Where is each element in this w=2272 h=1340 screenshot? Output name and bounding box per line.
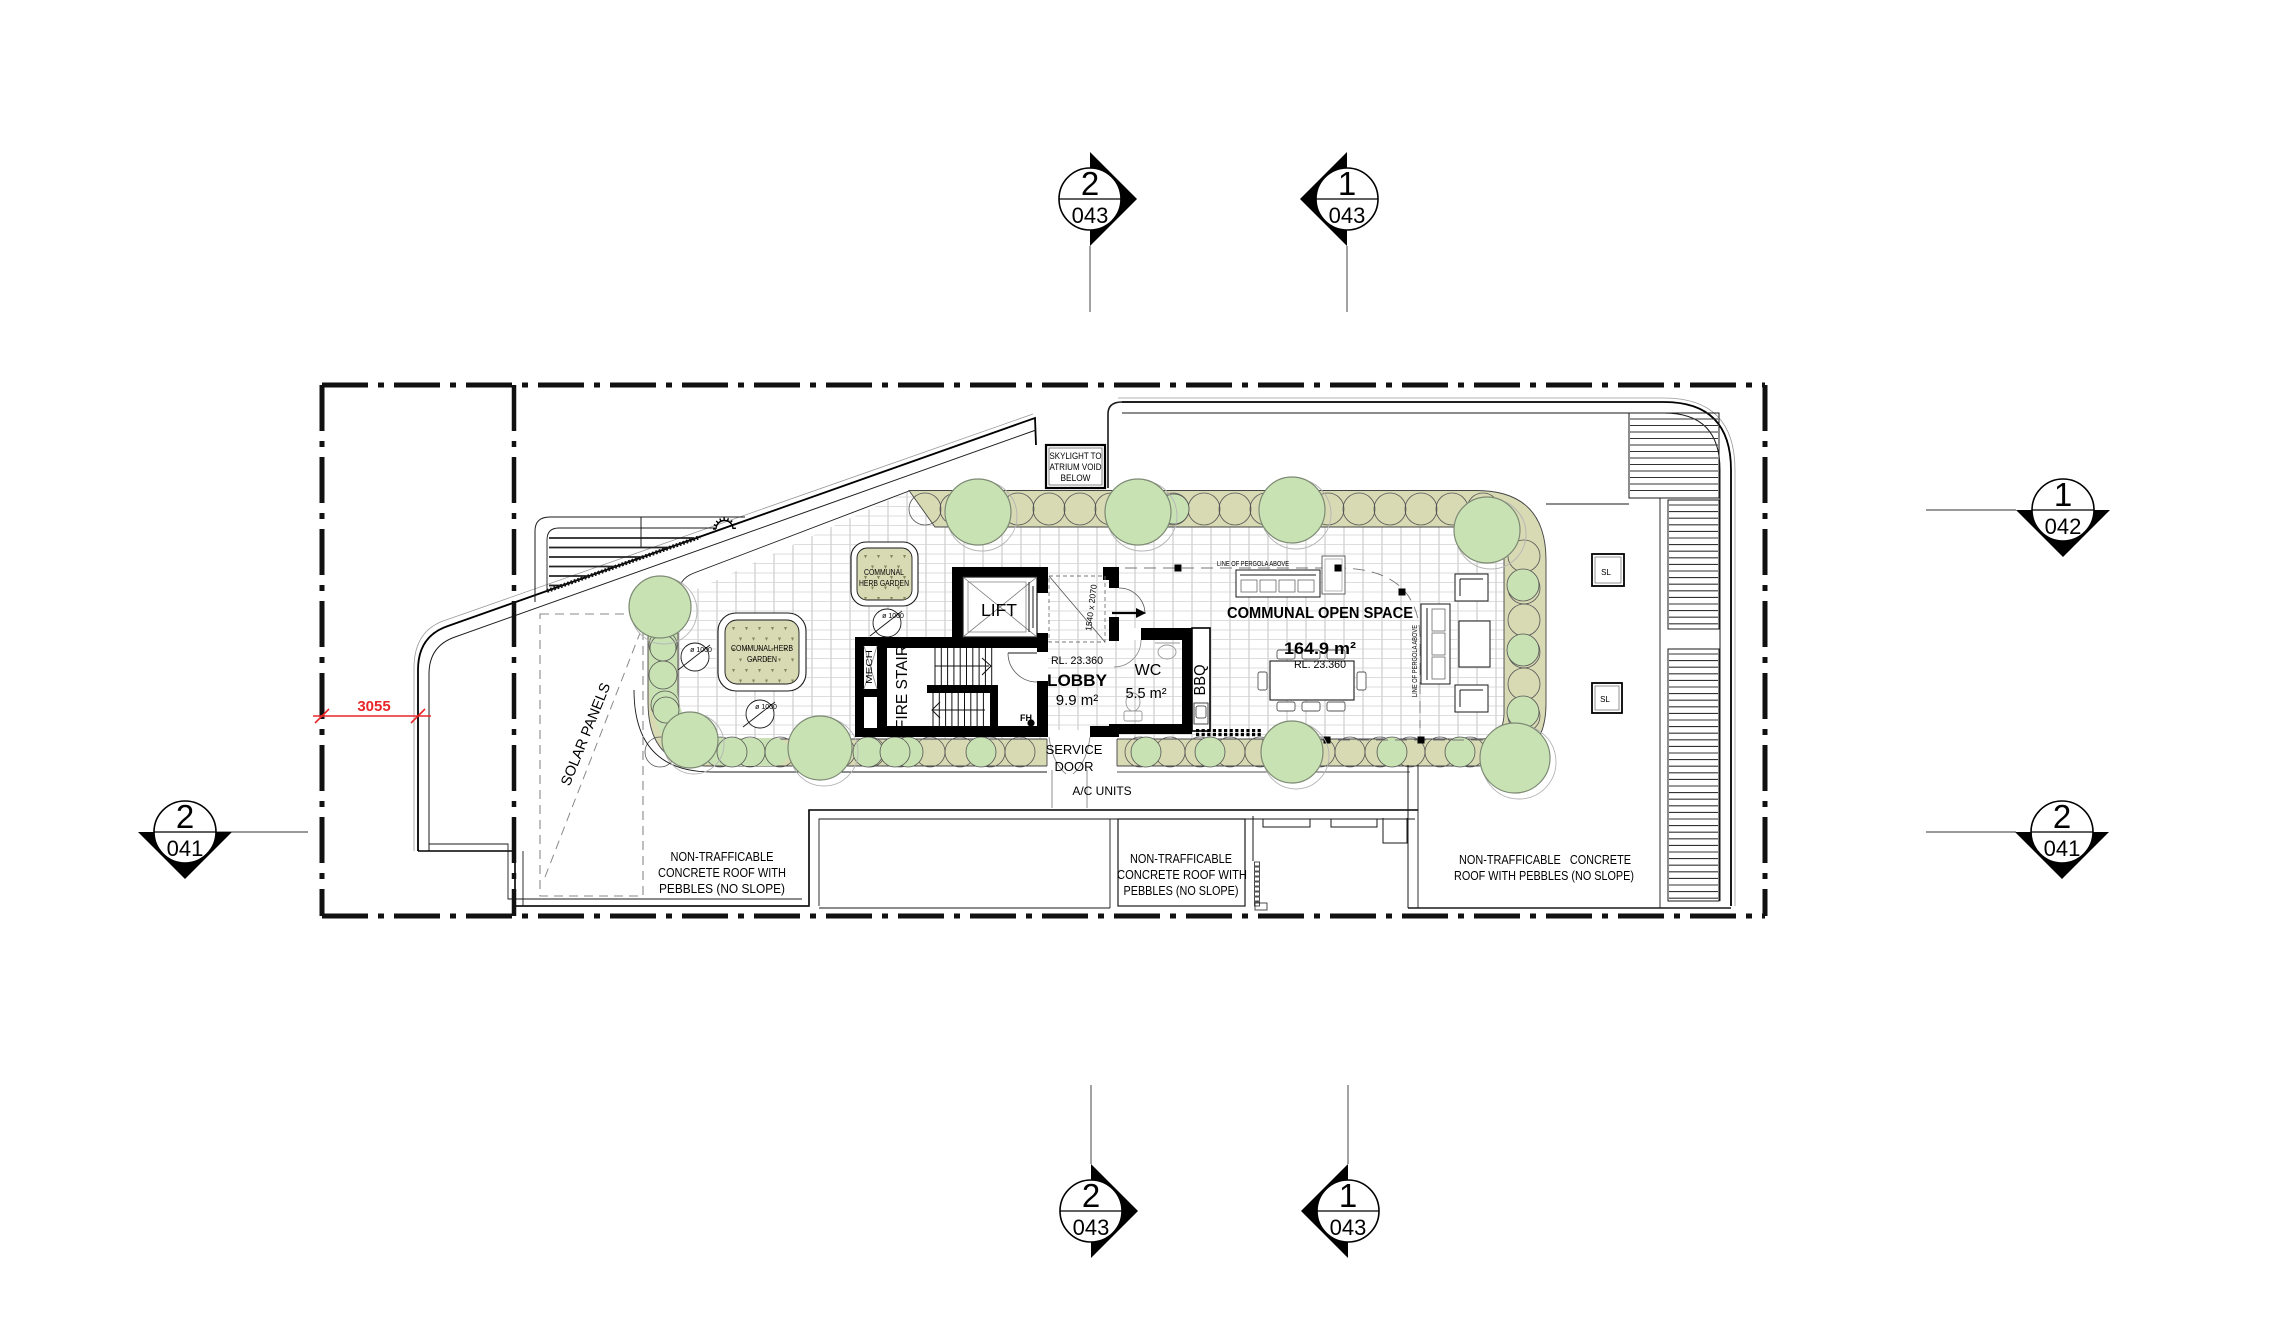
- svg-text:WC: WC: [1135, 662, 1162, 679]
- svg-text:COMMUNAL OPEN SPACE: COMMUNAL OPEN SPACE: [1227, 605, 1413, 622]
- svg-text:ATRIUM VOID: ATRIUM VOID: [1050, 462, 1102, 473]
- svg-text:LOBBY: LOBBY: [1047, 671, 1108, 690]
- svg-text:SERVICE: SERVICE: [1046, 742, 1103, 757]
- svg-text:PEBBLES (NO SLOPE): PEBBLES (NO SLOPE): [1124, 883, 1239, 898]
- svg-text:2: 2: [1081, 165, 1099, 202]
- svg-text:2: 2: [176, 798, 194, 835]
- svg-text:GARDEN: GARDEN: [747, 654, 777, 664]
- svg-text:041: 041: [2044, 836, 2081, 861]
- svg-text:041: 041: [167, 836, 204, 861]
- svg-text:LIFT: LIFT: [981, 600, 1017, 620]
- svg-text:ø 1000: ø 1000: [755, 704, 777, 711]
- svg-text:COMMUNAL: COMMUNAL: [864, 567, 904, 577]
- svg-text:042: 042: [2045, 514, 2082, 539]
- svg-text:SL: SL: [1601, 568, 1611, 577]
- svg-text:COMMUNAL HERB: COMMUNAL HERB: [731, 643, 793, 653]
- svg-text:RL. 23.360: RL. 23.360: [1051, 655, 1103, 667]
- svg-text:ø 1000: ø 1000: [882, 613, 904, 620]
- svg-text:SL: SL: [1600, 695, 1610, 704]
- svg-text:1: 1: [1338, 165, 1356, 202]
- svg-text:NON-TRAFFICABLE: NON-TRAFFICABLE: [671, 849, 774, 864]
- svg-text:HERB GARDEN: HERB GARDEN: [859, 578, 909, 588]
- svg-text:043: 043: [1072, 203, 1109, 228]
- svg-text:ROOF WITH PEBBLES (NO SLOPE): ROOF WITH PEBBLES (NO SLOPE): [1454, 868, 1634, 883]
- svg-text:5.5 m²: 5.5 m²: [1125, 686, 1166, 702]
- svg-text:DOOR: DOOR: [1055, 759, 1094, 774]
- svg-text:BBQ: BBQ: [1192, 665, 1209, 696]
- svg-text:FH: FH: [1020, 713, 1032, 723]
- svg-text:ø 1000: ø 1000: [690, 647, 712, 654]
- svg-text:043: 043: [1329, 203, 1366, 228]
- svg-text:PEBBLES (NO SLOPE): PEBBLES (NO SLOPE): [659, 881, 785, 896]
- svg-text:164.9 m²: 164.9 m²: [1284, 639, 1356, 658]
- svg-text:CONCRETE ROOF WITH: CONCRETE ROOF WITH: [658, 865, 786, 880]
- svg-text:2: 2: [2053, 798, 2071, 835]
- svg-text:2: 2: [1082, 1177, 1100, 1214]
- svg-text:043: 043: [1330, 1215, 1367, 1240]
- svg-text:CONCRETE ROOF WITH: CONCRETE ROOF WITH: [1117, 867, 1247, 882]
- svg-text:A/C UNITS: A/C UNITS: [1072, 784, 1131, 798]
- svg-text:FIRE STAIR: FIRE STAIR: [894, 645, 911, 729]
- svg-text:1: 1: [1339, 1177, 1357, 1214]
- svg-text:9.9 m²: 9.9 m²: [1056, 692, 1099, 709]
- svg-text:SKYLIGHT TO: SKYLIGHT TO: [1050, 451, 1102, 462]
- svg-text:1: 1: [2054, 476, 2072, 513]
- svg-text:LINE OF PERGOLA ABOVE: LINE OF PERGOLA ABOVE: [1217, 559, 1289, 568]
- svg-text:MECH: MECH: [865, 650, 874, 684]
- svg-text:3055: 3055: [357, 698, 390, 715]
- svg-text:NON-TRAFFICABLE: NON-TRAFFICABLE: [1130, 851, 1232, 866]
- svg-text:043: 043: [1073, 1215, 1110, 1240]
- svg-text:LINE OF PERGOLA ABOVE: LINE OF PERGOLA ABOVE: [1410, 625, 1419, 697]
- svg-text:NON-TRAFFICABLE CONCRETE: NON-TRAFFICABLE CONCRETE: [1459, 852, 1631, 867]
- svg-text:BELOW: BELOW: [1061, 473, 1091, 484]
- svg-text:RL. 23.360: RL. 23.360: [1294, 659, 1346, 671]
